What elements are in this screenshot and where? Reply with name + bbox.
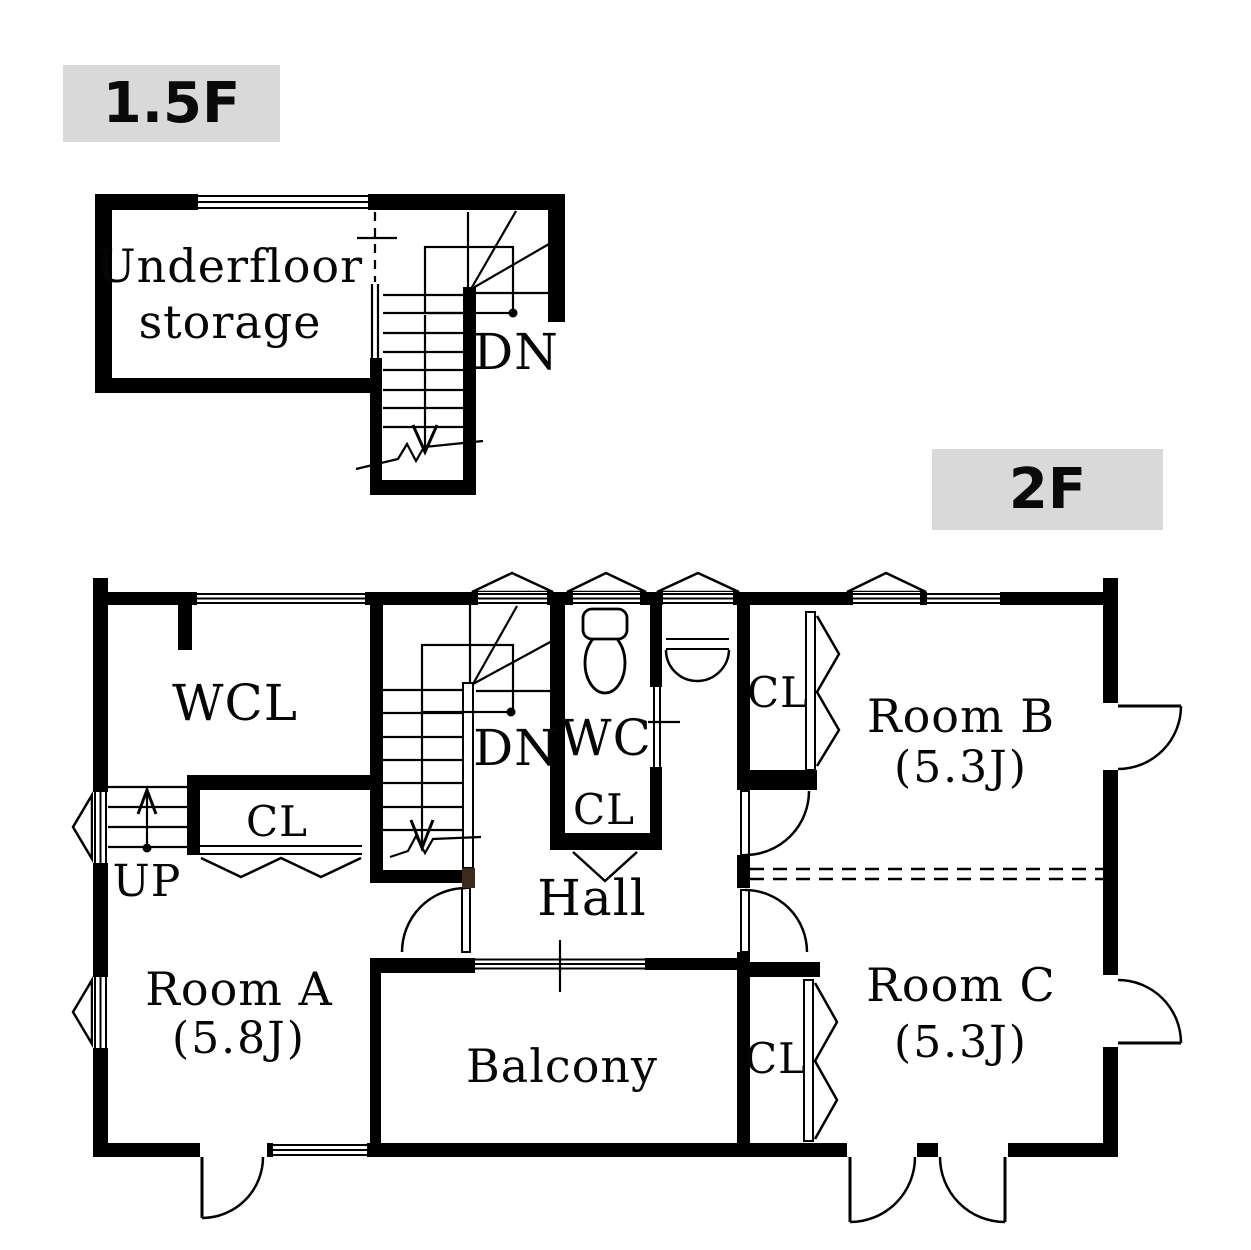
newel-post — [462, 868, 475, 888]
room-label-cl-room-c: CL — [745, 1038, 807, 1080]
stair-label-up: UP — [113, 860, 182, 904]
window — [73, 977, 108, 1048]
wall-segment — [370, 958, 381, 1155]
floor-label-1-5f-text: 1.5F — [103, 71, 240, 136]
cl-room-b-folding-door — [806, 612, 839, 770]
room-a-exterior-door — [200, 1143, 267, 1218]
door-arc — [940, 1157, 1005, 1222]
door-arc — [697, 650, 729, 681]
cl-left-folding-door — [200, 846, 362, 877]
floor-label-2f: 2F — [932, 449, 1163, 530]
wall-segment — [95, 194, 112, 393]
wall-segment — [370, 480, 476, 495]
room-label-cl-wc: CL — [573, 789, 635, 831]
wall-segment — [737, 770, 817, 790]
room-size-room-c: (5.3J) — [894, 1021, 1028, 1065]
room-label-wc: WC — [560, 713, 652, 763]
room-label-room-c: Room C — [866, 962, 1055, 1008]
window — [197, 592, 365, 605]
window — [198, 194, 368, 210]
stair-treads — [383, 295, 463, 427]
window — [73, 792, 108, 863]
room-label-cl-room-b: CL — [747, 672, 809, 714]
room-label-underfloor-storage-line1: Underfloor — [97, 243, 363, 289]
window — [273, 1143, 367, 1157]
wall-segment — [93, 578, 108, 1157]
wall-segment — [645, 958, 750, 970]
window-triangle-icon — [657, 573, 739, 592]
wall-segment — [370, 358, 382, 495]
room-label-hall: Hall — [537, 873, 646, 923]
wall-segment — [548, 194, 565, 322]
wall-segment — [650, 605, 662, 687]
staircase-up — [108, 787, 187, 853]
floor-label-1-5f: 1.5F — [63, 65, 280, 142]
door-arc — [202, 1157, 263, 1218]
wall-segment — [178, 605, 192, 650]
handrail-dot — [507, 708, 516, 717]
floorplan-page: 1.5F 2F Underfloor storage DN WCL CL UP … — [0, 0, 1251, 1250]
window — [478, 592, 547, 605]
door-arc — [1118, 706, 1181, 769]
wall-segment — [95, 378, 382, 393]
stair-label-dn-1-5f: DN — [473, 327, 559, 377]
up-arrow-dot — [143, 844, 152, 853]
room-size-room-b: (5.3J) — [894, 746, 1028, 790]
window-triangle-icon — [472, 573, 553, 592]
window — [663, 592, 733, 605]
door-arc — [745, 890, 807, 952]
hall-closet-doors — [666, 639, 729, 681]
folding-door-zigzag — [201, 858, 361, 877]
window-triangle-icon — [73, 795, 92, 859]
stair-label-dn-2f: DN — [473, 723, 559, 773]
wall-segment — [1103, 578, 1118, 1157]
wall-segment — [550, 833, 662, 850]
wall-segment — [370, 870, 463, 883]
wall-segment — [187, 775, 383, 790]
room-label-underfloor-storage-line2: storage — [139, 299, 322, 345]
wall-segment — [370, 605, 383, 883]
window — [927, 592, 1000, 605]
wall-segment — [463, 287, 476, 480]
window — [853, 592, 920, 605]
window-triangles — [472, 573, 926, 592]
room-label-wcl: WCL — [172, 678, 298, 728]
window-triangle-icon — [567, 573, 646, 592]
wall-segment — [187, 775, 200, 855]
top-windows — [197, 592, 1000, 605]
door-arc — [666, 650, 697, 681]
room-label-room-a: Room A — [145, 966, 332, 1012]
door-arc — [1118, 980, 1181, 1043]
room-c-side-door — [1103, 975, 1181, 1047]
wc-sliding-door — [648, 687, 680, 767]
room-label-balcony: Balcony — [466, 1043, 658, 1089]
window-triangle-icon — [847, 573, 926, 592]
door-arc — [402, 888, 466, 952]
window — [573, 592, 640, 605]
hall-room-a-door — [402, 888, 470, 952]
banister — [463, 683, 473, 868]
wall-segment — [737, 962, 820, 977]
window-triangle-icon — [73, 980, 92, 1044]
movable-partition-dashed — [750, 869, 1103, 879]
wall-segment — [370, 958, 475, 973]
hall-room-b-door — [741, 791, 809, 855]
hall-balcony-window — [475, 940, 645, 992]
room-b-exterior-door — [1103, 703, 1181, 770]
hall-room-c-door — [741, 890, 807, 952]
cl-room-c-folding-door — [804, 980, 837, 1141]
toilet-icon — [583, 609, 627, 693]
folding-door-zigzag — [817, 616, 839, 766]
room-label-room-b: Room B — [867, 693, 1055, 739]
wall-segment — [737, 855, 750, 888]
door-arc — [850, 1157, 915, 1222]
room-size-room-a: (5.8J) — [172, 1017, 306, 1061]
floor-label-2f-text: 2F — [1009, 457, 1086, 522]
handrail-dot — [509, 309, 518, 318]
door-arc — [745, 791, 809, 855]
folding-door-zigzag — [815, 983, 837, 1139]
room-label-cl-left: CL — [246, 801, 308, 843]
